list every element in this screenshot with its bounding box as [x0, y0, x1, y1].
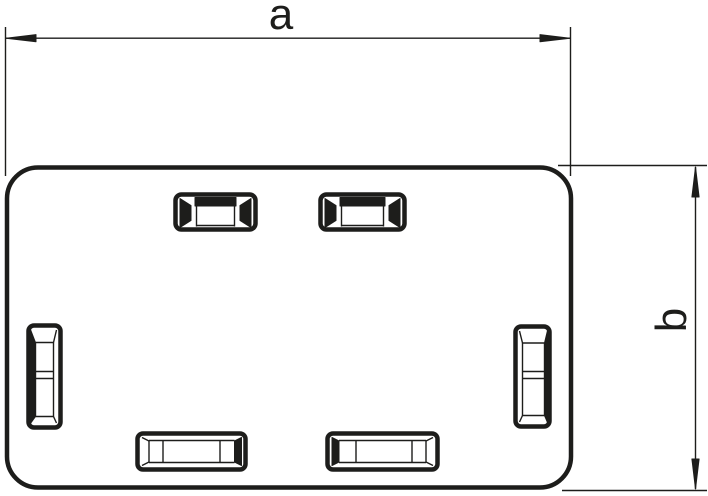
arrowhead-left-icon — [6, 35, 36, 42]
slot-bottom-right-outer — [328, 434, 438, 470]
slot-bottom-right-bevel-right-top-slant — [426, 438, 433, 442]
slot-right-bevel-bottom-slant — [520, 416, 523, 423]
slot-bottom-left — [138, 434, 246, 470]
dimension-b: b — [558, 166, 707, 491]
slot-bottom-left-bevel-left-bottom-slant — [142, 462, 149, 466]
technical-drawing-canvas: a — [0, 0, 708, 496]
dimension-b-label: b — [647, 308, 696, 332]
dimension-a: a — [6, 0, 571, 176]
slot-bottom-right — [328, 434, 438, 470]
slot-left-bevel-top-slant — [54, 330, 57, 343]
slot-left-bevel-bottom-slant — [54, 417, 57, 424]
slot-bottom-left-outer — [138, 434, 246, 470]
slot-right — [516, 327, 550, 427]
arrowhead-down-icon — [692, 459, 699, 489]
slot-right-bevel-top-slant — [520, 331, 523, 343]
arrowhead-up-icon — [692, 167, 699, 197]
slot-top-right — [321, 195, 405, 230]
slot-top-left — [176, 195, 256, 230]
slot-top-right-top-wall — [340, 198, 385, 207]
part-outline — [7, 168, 571, 488]
slot-top-left-top-wall — [195, 198, 236, 207]
slot-left — [29, 326, 61, 428]
slot-top-left-bevel-left — [180, 199, 191, 228]
drawing-svg: a — [0, 0, 708, 496]
dimension-a-label: a — [269, 0, 294, 39]
slot-top-left-bevel-right — [240, 199, 251, 228]
arrowhead-right-icon — [540, 35, 570, 42]
cover-plate-body — [7, 168, 571, 488]
slot-left-bevel-side — [31, 330, 36, 424]
slot-bottom-right-bevel-right-bottom-slant — [426, 462, 433, 466]
slot-bottom-left-bevel-right — [235, 438, 242, 466]
slot-top-right-bevel-left — [325, 199, 336, 228]
slot-bottom-left-bevel-left-top-slant — [142, 438, 149, 442]
slot-top-right-bevel-right — [389, 199, 400, 228]
slot-bottom-right-bevel-left — [332, 438, 339, 466]
